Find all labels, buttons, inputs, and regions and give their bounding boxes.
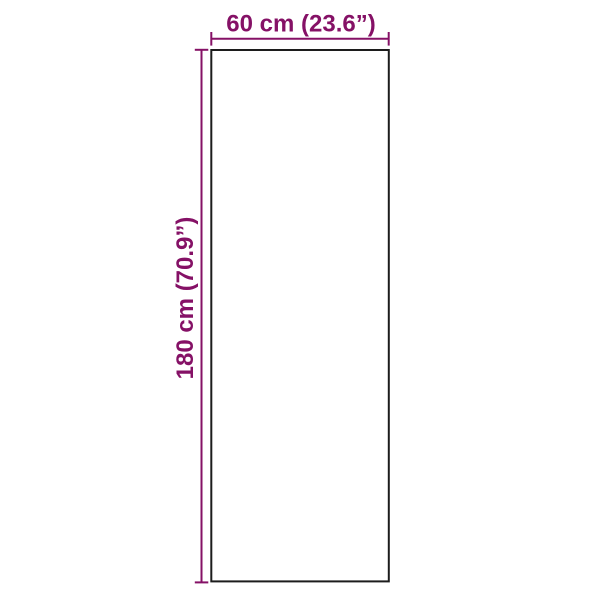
svg-text:60 cm (23.6”): 60 cm (23.6”) (226, 11, 375, 38)
svg-text:180 cm (70.9”): 180 cm (70.9”) (172, 217, 199, 380)
